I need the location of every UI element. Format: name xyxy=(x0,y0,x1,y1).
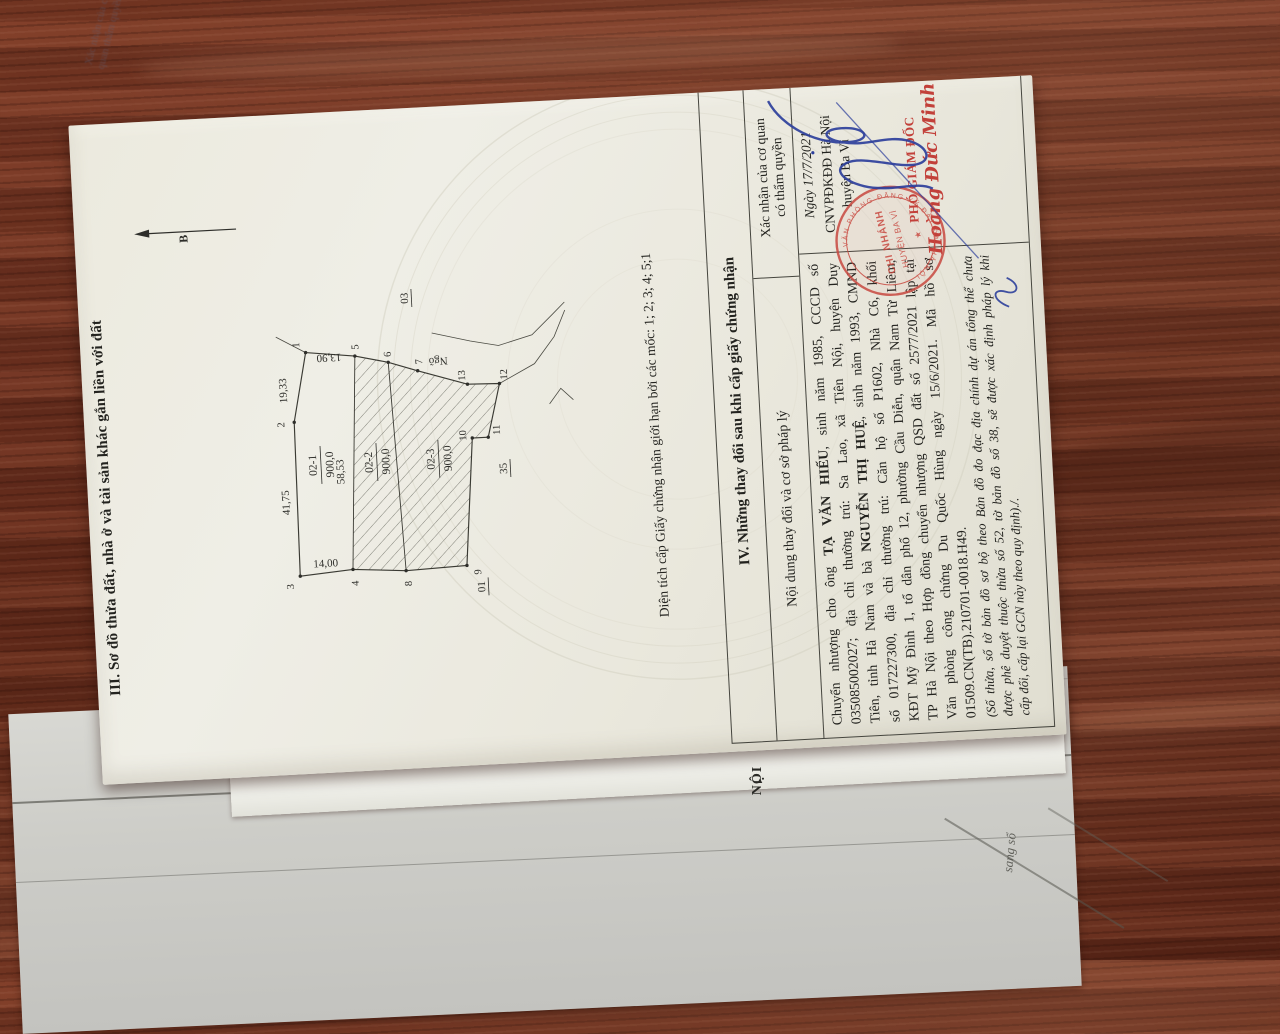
photo-of-land-certificate: { "colors":{"wood":"#6e3322","paper":"#e… xyxy=(0,0,1280,960)
page-peek-text: NỘI ▲ xyxy=(750,766,775,795)
svg-text:3: 3 xyxy=(286,584,297,590)
svg-text:02-3: 02-3 xyxy=(425,448,438,470)
wood-grain-highlight xyxy=(1059,687,1280,739)
svg-text:11: 11 xyxy=(492,424,504,435)
parcel-sketch xyxy=(275,302,582,577)
svg-text:9: 9 xyxy=(473,569,484,575)
svg-text:900,0: 900,0 xyxy=(380,448,393,475)
svg-text:10: 10 xyxy=(458,430,470,441)
svg-text:4: 4 xyxy=(351,580,362,587)
svg-text:1: 1 xyxy=(291,342,302,348)
svg-text:8: 8 xyxy=(404,581,415,587)
svg-text:7: 7 xyxy=(414,359,425,365)
svg-text:02-1: 02-1 xyxy=(307,454,320,476)
north-arrow-icon: B xyxy=(134,225,237,245)
svg-text:900,0: 900,0 xyxy=(442,445,455,472)
faint-underpage-text: Xác nhận của cơ quan thẩm quyền xyxy=(80,0,127,79)
svg-text:Ngõ: Ngõ xyxy=(428,354,448,367)
svg-text:41,75: 41,75 xyxy=(280,490,293,516)
svg-text:02-2: 02-2 xyxy=(363,451,376,473)
main-page: III. Sơ đồ thửa đất, nhà ở và tài sản kh… xyxy=(68,75,1066,785)
under-table-corner: sang sổ xyxy=(900,809,1111,975)
section4-table: IV. Những thay đổi sau khi cấp giấy chứn… xyxy=(697,75,1055,744)
svg-text:01: 01 xyxy=(476,581,489,593)
table-border-line xyxy=(944,818,1124,929)
svg-text:12: 12 xyxy=(499,369,511,380)
svg-text:03: 03 xyxy=(399,292,412,304)
partial-letter: ▲ xyxy=(756,776,785,785)
table-border-line xyxy=(1048,807,1168,881)
transfer-paragraph: Chuyển nhượng cho ông TẠ VĂN HIẾU, sinh … xyxy=(804,256,982,725)
change-content-cell: Chuyển nhượng cho ông TẠ VĂN HIẾU, sinh … xyxy=(799,243,1054,738)
svg-text:B: B xyxy=(176,234,190,243)
diagram-caption: Diện tích cấp Giấy chứng nhận giới hạn b… xyxy=(635,197,673,617)
section3-title: III. Sơ đồ thửa đất, nhà ở và tài sản kh… xyxy=(86,266,125,696)
svg-text:5: 5 xyxy=(350,344,361,350)
wood-grain-streak xyxy=(1016,398,1280,531)
svg-text:13,90: 13,90 xyxy=(316,351,342,364)
svg-text:19,33: 19,33 xyxy=(277,378,290,404)
svg-text:58,53: 58,53 xyxy=(334,459,347,485)
wood-grain-highlight xyxy=(140,27,901,88)
under-page-italic-text: sang sổ xyxy=(1000,832,1020,873)
svg-text:6: 6 xyxy=(383,351,394,357)
svg-text:14,00: 14,00 xyxy=(313,557,339,570)
diagram-labels: 1234567891011121302-1900,002-2900,002-39… xyxy=(270,284,522,606)
svg-text:13: 13 xyxy=(457,370,469,381)
svg-text:2: 2 xyxy=(276,422,287,428)
svg-text:35: 35 xyxy=(498,462,511,474)
document-surface: III. Sơ đồ thửa đất, nhà ở và tài sản kh… xyxy=(68,75,1066,785)
svg-text:900,0: 900,0 xyxy=(324,451,337,478)
